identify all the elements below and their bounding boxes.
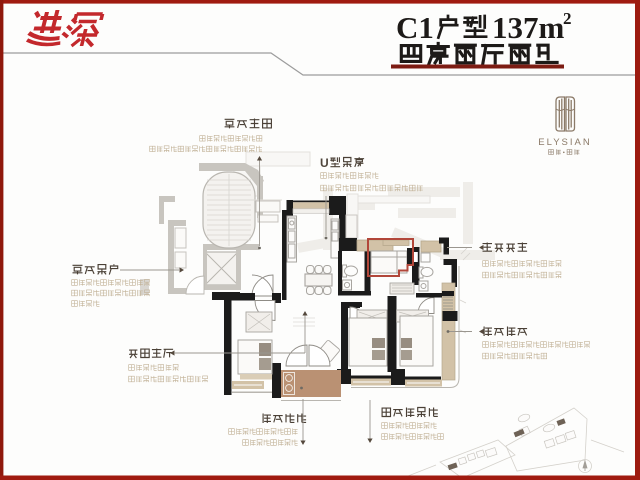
svg-text:U: U xyxy=(320,156,329,170)
svg-text:137m: 137m xyxy=(492,10,565,45)
svg-text:C1: C1 xyxy=(396,10,434,45)
svg-text:2: 2 xyxy=(563,9,572,28)
svg-text:ELYSIAN: ELYSIAN xyxy=(538,137,591,148)
